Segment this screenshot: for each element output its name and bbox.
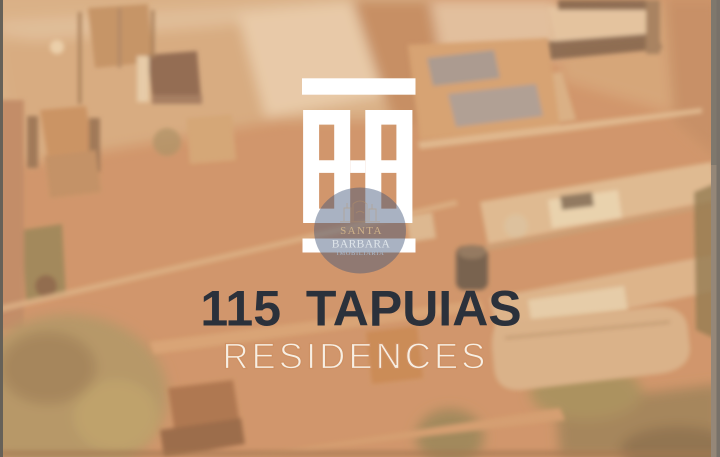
svg-text:BARBARA: BARBARA	[332, 239, 391, 251]
svg-text:IMOBILIÁRIA: IMOBILIÁRIA	[337, 249, 385, 257]
svg-text:SANTA: SANTA	[340, 225, 383, 237]
svg-text:115 TAPUIAS: 115 TAPUIAS	[200, 281, 521, 337]
svg-text:RESIDENCES: RESIDENCES	[222, 336, 488, 377]
